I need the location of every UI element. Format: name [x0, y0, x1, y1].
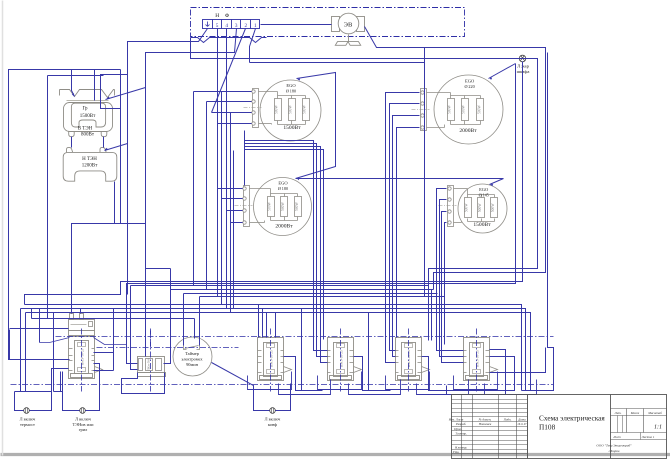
- svg-text:Л жар: Л жар: [517, 64, 529, 69]
- svg-text:Ø 180: Ø 180: [286, 89, 296, 94]
- svg-text:500W: 500W: [462, 105, 466, 114]
- svg-text:Изм. Лист: Изм. Лист: [448, 418, 464, 422]
- svg-text:В ТЭН: В ТЭН: [78, 127, 93, 132]
- svg-text:Утв.: Утв.: [453, 450, 460, 454]
- svg-text:электромех: электромех: [181, 356, 203, 361]
- svg-text:500W: 500W: [289, 105, 293, 114]
- svg-text:500W: 500W: [448, 105, 452, 114]
- svg-text:500W: 500W: [275, 105, 279, 114]
- svg-text:ЭВ: ЭВ: [344, 21, 353, 28]
- svg-text:Лист: Лист: [612, 435, 621, 439]
- svg-text:Листов 1: Листов 1: [641, 435, 655, 439]
- svg-text:термост: термост: [20, 422, 35, 427]
- svg-text:Л включ: Л включ: [265, 417, 282, 422]
- svg-text:Дата: Дата: [517, 418, 526, 422]
- svg-text:Н ТЭН: Н ТЭН: [82, 157, 97, 162]
- svg-text:Н.контр.: Н.контр.: [454, 445, 468, 449]
- svg-text:EGO: EGO: [479, 187, 489, 192]
- svg-text:конф: конф: [268, 422, 277, 427]
- svg-text:Масштаб: Масштаб: [647, 411, 662, 415]
- svg-text:2000Вт: 2000Вт: [275, 224, 293, 230]
- svg-text:ПМЭ-16-23: ПМЭ-16-23: [407, 350, 411, 367]
- svg-text:№ докум.: № докум.: [478, 418, 492, 422]
- svg-text:EGO: EGO: [278, 181, 288, 186]
- svg-text:EGO: EGO: [286, 83, 296, 88]
- svg-text:Разраб.: Разраб.: [455, 422, 466, 426]
- svg-text:Н: Н: [215, 13, 219, 19]
- svg-text:ПМЭ-16-23: ПМЭ-16-23: [339, 350, 343, 367]
- svg-text:1500Вт: 1500Вт: [283, 125, 301, 131]
- svg-text:Масса: Масса: [630, 411, 640, 415]
- svg-text:500W: 500W: [303, 105, 307, 114]
- svg-text:800Вт: 800Вт: [81, 133, 95, 138]
- svg-text:EGO: EGO: [465, 78, 475, 83]
- svg-text:Л включ: Л включ: [75, 417, 92, 422]
- svg-text:500W: 500W: [281, 202, 285, 211]
- svg-text:500W: 500W: [267, 202, 271, 211]
- svg-text:Таймер: Таймер: [185, 351, 200, 356]
- svg-text:Ø 220: Ø 220: [465, 84, 475, 89]
- svg-text:500W: 500W: [491, 203, 495, 212]
- svg-text:Лит.: Лит.: [614, 411, 622, 415]
- svg-text:28.11.07: 28.11.07: [518, 423, 528, 426]
- svg-text:500W: 500W: [477, 105, 481, 114]
- svg-text:1500Вт: 1500Вт: [473, 222, 491, 228]
- svg-text:П108: П108: [539, 423, 556, 432]
- svg-text:90мин: 90мин: [186, 362, 199, 367]
- svg-text:2: 2: [244, 23, 247, 29]
- svg-text:500W: 500W: [295, 202, 299, 211]
- svg-text:г.Киров: г.Киров: [609, 449, 620, 453]
- svg-text:1:1: 1:1: [654, 424, 662, 430]
- svg-text:500W: 500W: [465, 203, 469, 212]
- svg-text:500W: 500W: [478, 203, 482, 212]
- svg-text:Л включ: Л включ: [20, 417, 37, 422]
- svg-text:Ø 180: Ø 180: [278, 186, 288, 191]
- svg-text:4: 4: [225, 23, 228, 29]
- svg-text:Гр: Гр: [82, 107, 88, 112]
- svg-text:2000Вт: 2000Вт: [459, 128, 477, 134]
- svg-text:ПКн-506: ПКн-506: [147, 358, 151, 370]
- svg-text:1500Вт: 1500Вт: [80, 114, 96, 119]
- svg-text:1: 1: [254, 23, 257, 29]
- svg-text:ООО "Тека Энергоприб": ООО "Тека Энергоприб": [596, 444, 632, 448]
- svg-text:Т.контр.: Т.контр.: [455, 432, 467, 436]
- svg-text:Схема электрическая: Схема электрическая: [539, 414, 605, 423]
- svg-text:Ф: Ф: [225, 13, 230, 19]
- svg-text:ТЭНов или: ТЭНов или: [72, 422, 94, 427]
- svg-text:Пров.: Пров.: [453, 427, 462, 431]
- svg-text:Николаев: Николаев: [478, 422, 492, 426]
- svg-text:5: 5: [216, 23, 219, 29]
- svg-text:Подп.: Подп.: [503, 418, 512, 422]
- svg-text:ПМЭ-16-23: ПМЭ-16-23: [475, 350, 479, 367]
- svg-text:1200Вт: 1200Вт: [82, 164, 98, 169]
- svg-text:3: 3: [235, 23, 238, 29]
- svg-text:грил: грил: [79, 427, 88, 432]
- svg-text:Ø 145: Ø 145: [479, 193, 489, 198]
